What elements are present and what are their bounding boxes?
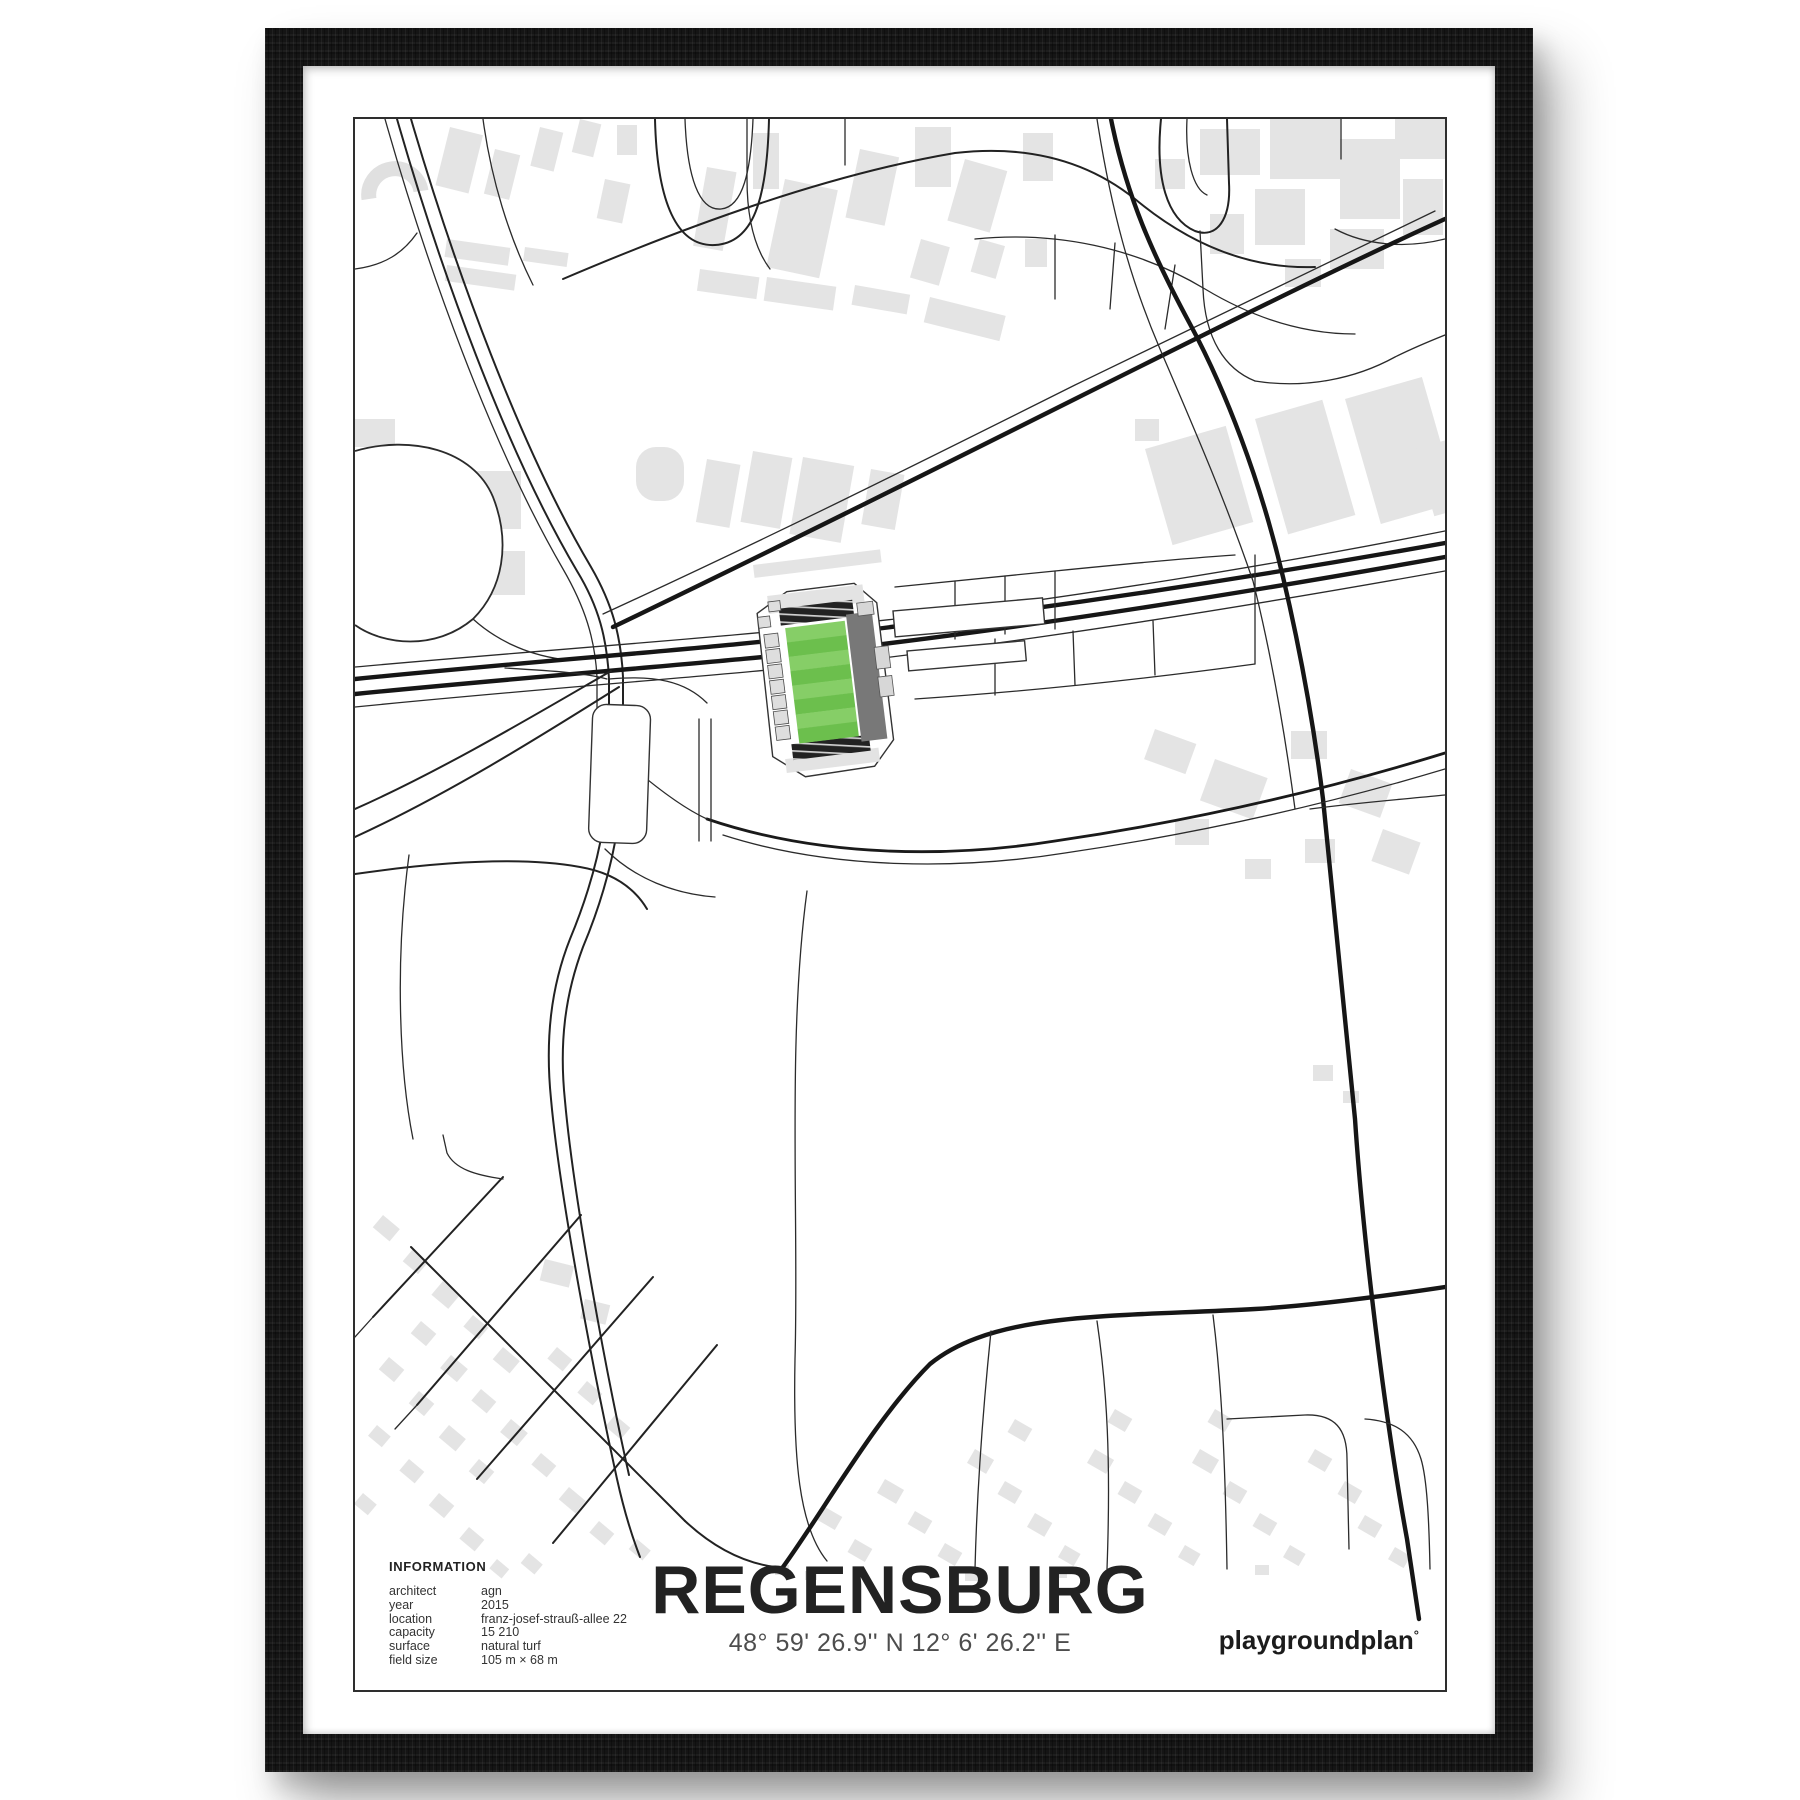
mat-border: INFORMATION architectagnyear2015location… [303,66,1495,1734]
stadium [753,580,903,780]
map-buildings-layer [355,119,1445,1581]
brand-name: playgroundplan [1219,1625,1414,1655]
map-roads-layer [355,119,1445,1619]
houses-southwest [355,1215,651,1578]
stadium-map [355,119,1445,1690]
brand-degree-mark: ° [1414,1627,1419,1642]
poster-art: INFORMATION architectagnyear2015location… [353,117,1447,1692]
poster-title: REGENSBURG [355,1551,1445,1629]
brand-logo: playgroundplan° [1219,1625,1419,1656]
product-photo: INFORMATION architectagnyear2015location… [0,0,1800,1800]
picture-frame: INFORMATION architectagnyear2015location… [265,28,1533,1772]
